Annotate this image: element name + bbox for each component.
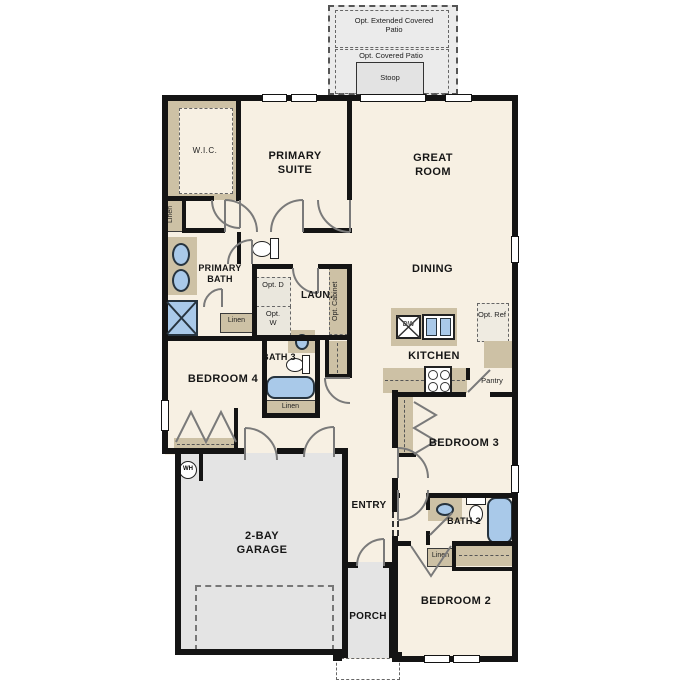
wall xyxy=(175,452,181,655)
laundry-label: LAUN. xyxy=(292,290,342,302)
bedroom4-label: BEDROOM 4 xyxy=(163,373,283,387)
wall xyxy=(342,448,348,658)
burner-icon xyxy=(440,370,450,380)
wall xyxy=(162,196,214,201)
bath2-sink xyxy=(436,503,454,516)
wall xyxy=(490,392,518,397)
window xyxy=(511,465,519,493)
wall xyxy=(347,264,352,340)
wall xyxy=(392,541,411,546)
shower xyxy=(165,300,198,336)
kitchen-wall-cabinet xyxy=(484,341,512,368)
hall-closet-shelf xyxy=(337,343,338,373)
wall xyxy=(236,95,241,201)
bath2-toilet-tank xyxy=(466,497,486,505)
bedroom3-closet xyxy=(398,397,413,455)
wall xyxy=(182,228,225,233)
bath3-label: BATH 3 xyxy=(262,352,296,363)
opt-ref xyxy=(477,303,509,342)
bedroom3-closet-dash xyxy=(404,400,405,452)
wall xyxy=(342,562,358,568)
burner-icon xyxy=(428,382,438,392)
bath3-linen-label: Linen xyxy=(266,403,315,411)
wall xyxy=(426,531,430,545)
wall xyxy=(426,498,430,510)
wall xyxy=(162,336,319,341)
wall xyxy=(237,232,241,264)
opt-ref-label: Opt. Ref xyxy=(478,311,506,320)
burner-icon xyxy=(428,370,438,380)
wall xyxy=(252,264,257,340)
linen-closet-hall-label: Linen xyxy=(167,201,175,228)
wall xyxy=(392,390,398,448)
primary-linen-label: Linen xyxy=(220,317,253,325)
opt-covered-patio-label: Opt. Covered Patio xyxy=(336,52,446,61)
wall xyxy=(512,95,518,662)
pantry-label: Pantry xyxy=(472,377,512,386)
kitchen-sink-right xyxy=(440,318,451,336)
wall xyxy=(277,448,305,454)
bath2-linen-label: Linen xyxy=(427,552,454,560)
bath2-tub xyxy=(487,497,513,544)
wall xyxy=(252,264,293,269)
wall xyxy=(466,368,470,380)
primary-toilet xyxy=(252,241,272,257)
wall xyxy=(234,408,238,451)
wall xyxy=(199,453,203,481)
wall xyxy=(392,392,466,397)
water-heater: WH xyxy=(179,461,197,479)
kitchen-label: KITCHEN xyxy=(390,350,478,364)
great-room-label: GREAT ROOM xyxy=(400,152,466,180)
wall xyxy=(262,413,320,418)
wall xyxy=(452,541,518,546)
window xyxy=(161,400,169,431)
primary-toilet-tank xyxy=(270,238,279,259)
wall xyxy=(175,649,348,655)
floor-plan: Opt. Extended Covered Patio Opt. Covered… xyxy=(0,0,687,687)
bedroom2-closet-dash xyxy=(459,555,509,556)
garage-door-outline xyxy=(195,585,334,651)
wall xyxy=(325,340,329,378)
porch-label: PORCH xyxy=(344,611,392,623)
dishwasher-label: DW xyxy=(398,321,419,329)
window xyxy=(453,655,480,663)
wall xyxy=(325,374,352,378)
wall xyxy=(315,336,320,418)
porch-steps xyxy=(336,658,400,680)
bath3-toilet-tank xyxy=(302,355,310,374)
window xyxy=(424,655,450,663)
bedroom3-label: BEDROOM 3 xyxy=(414,437,514,451)
wall xyxy=(347,95,352,200)
hall-closet xyxy=(329,341,347,375)
wall xyxy=(392,493,400,498)
bath2-label: BATH 2 xyxy=(446,516,482,527)
burner-icon xyxy=(440,382,450,392)
dining-label: DINING xyxy=(380,263,485,277)
entry-cased-opening xyxy=(392,512,399,536)
bedroom4-closet-dash xyxy=(177,444,234,445)
sliding-door xyxy=(360,94,426,102)
wall xyxy=(347,340,352,378)
opt-dryer-label: Opt. D xyxy=(262,281,284,290)
wall xyxy=(398,453,416,457)
opt-washer-label: Opt. W xyxy=(262,310,284,327)
bedroom2-closet-shelf xyxy=(456,546,512,566)
bedroom2-label: BEDROOM 2 xyxy=(400,595,512,609)
wall xyxy=(452,567,518,571)
wall xyxy=(303,228,352,233)
window xyxy=(445,94,472,102)
primary-bath-label: PRIMARY BATH xyxy=(188,263,252,285)
opt-extended-patio-label: Opt. Extended Covered Patio xyxy=(352,17,436,34)
window xyxy=(262,94,287,102)
entry-label: ENTRY xyxy=(344,500,394,512)
primary-suite-label: PRIMARY SUITE xyxy=(255,150,335,178)
window xyxy=(511,236,519,263)
wic-label: W.I.C. xyxy=(181,146,229,155)
window xyxy=(291,94,317,102)
wall xyxy=(392,536,398,656)
stoop-label: Stoop xyxy=(356,74,424,83)
wall xyxy=(426,493,518,498)
porch-floor xyxy=(346,562,390,658)
garage-label: 2-BAY GARAGE xyxy=(222,530,302,558)
kitchen-sink-left xyxy=(426,318,437,336)
